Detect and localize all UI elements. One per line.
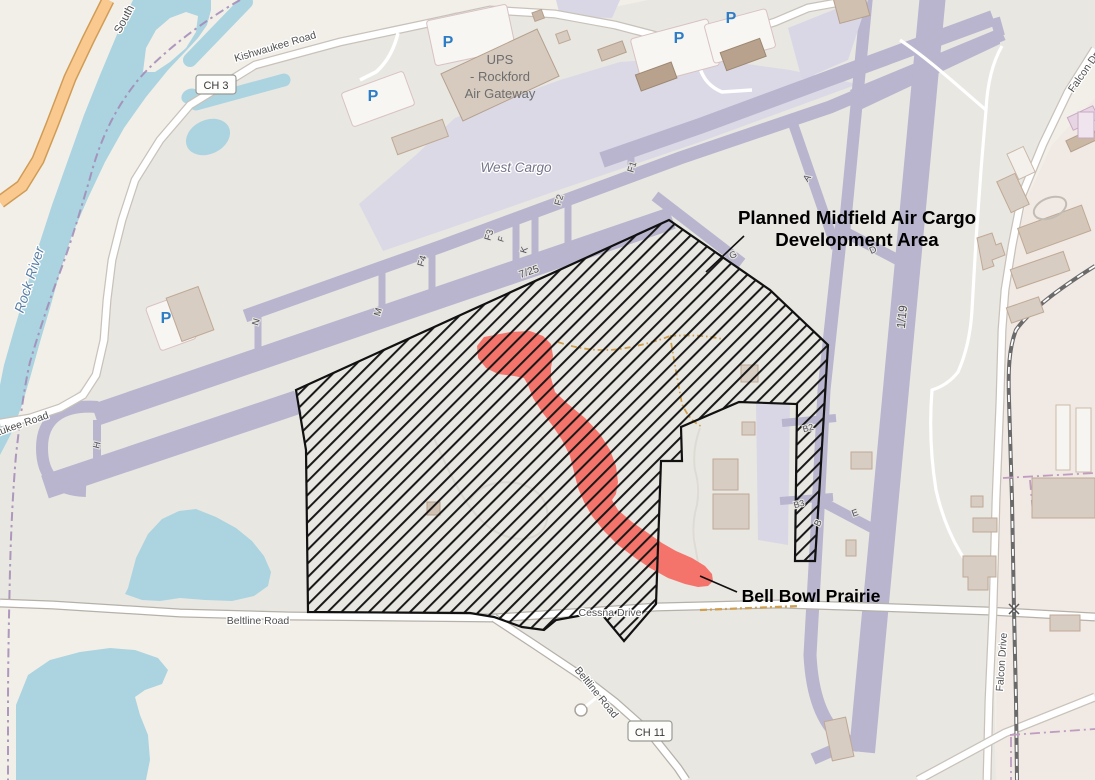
svg-text:Development Area: Development Area [775, 229, 939, 250]
svg-text:Beltline Road: Beltline Road [227, 615, 290, 627]
svg-text:Cessna Drive: Cessna Drive [578, 607, 641, 619]
svg-text:West Cargo: West Cargo [480, 160, 552, 175]
svg-text:- Rockford: - Rockford [470, 69, 530, 84]
svg-text:P: P [726, 10, 737, 27]
svg-text:Bell Bowl Prairie: Bell Bowl Prairie [742, 586, 881, 606]
svg-text:P: P [161, 310, 172, 327]
svg-text:Air Gateway: Air Gateway [465, 86, 536, 101]
svg-text:P: P [674, 30, 685, 47]
svg-text:UPS: UPS [487, 52, 514, 67]
svg-text:1/19: 1/19 [894, 304, 910, 329]
svg-text:CH 11: CH 11 [635, 727, 665, 739]
svg-text:P: P [443, 34, 454, 51]
svg-text:P: P [368, 88, 379, 105]
svg-text:Planned Midfield Air Cargo: Planned Midfield Air Cargo [738, 207, 976, 228]
svg-text:CH 3: CH 3 [203, 80, 228, 92]
